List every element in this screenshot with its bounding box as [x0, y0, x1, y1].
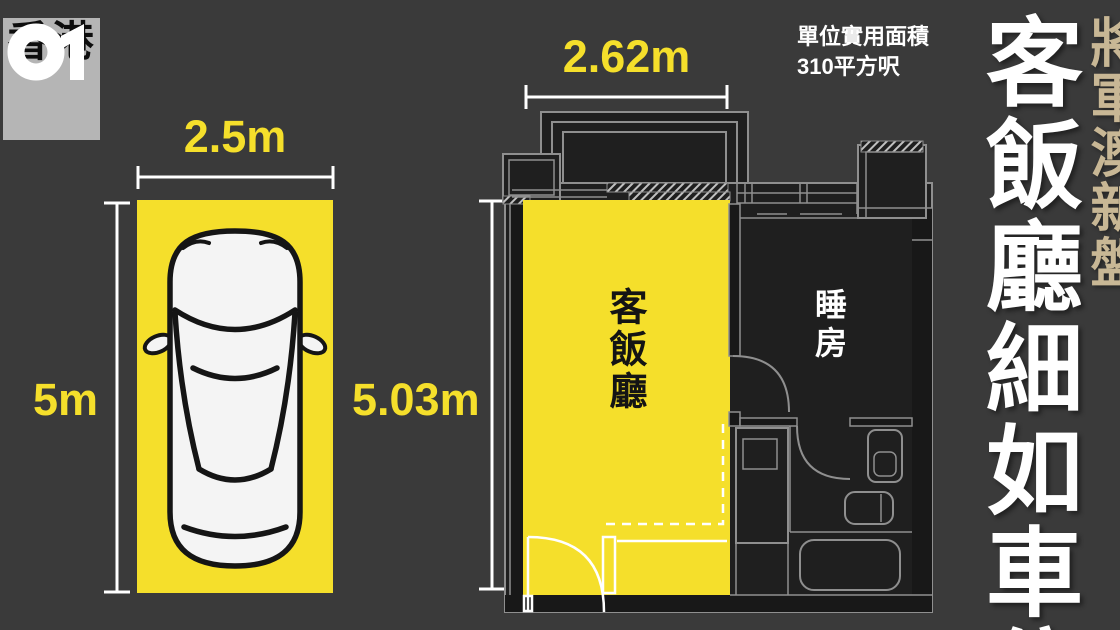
hk01-logo: 香港 — [3, 18, 100, 140]
parking-space — [104, 166, 333, 593]
wardrobe — [736, 428, 788, 543]
hatched-wall-a — [607, 183, 728, 192]
car-body — [170, 231, 300, 566]
parking-width-dimension — [138, 166, 333, 189]
bedroom-bathroom-wall-left — [740, 418, 797, 426]
subtitle-vertical: 將軍澳新盤 — [1086, 15, 1120, 290]
car-top-view-illustration — [142, 231, 328, 566]
logo-zero-glyph — [16, 32, 56, 72]
diagram-layer — [0, 0, 1120, 630]
unit-length-label: 5.03m — [352, 377, 478, 422]
parking-length-dimension — [104, 203, 130, 592]
living-bedroom-wall-upper — [729, 204, 740, 356]
top-right-box — [858, 145, 926, 218]
infographic-canvas: 香港 2.5m 5m 2.62m 5.03m 單位實用面積 310平方呎 客飯廳… — [0, 0, 1120, 630]
floor-plan — [503, 112, 932, 612]
wall-right-band — [912, 208, 932, 605]
wall-left-band — [510, 183, 523, 595]
hatched-wall-b — [629, 192, 730, 201]
area-note: 單位實用面積 310平方呎 — [797, 22, 929, 81]
hatched-wall-top-right — [861, 141, 923, 152]
headline-vertical: 客飯廳細如車位 — [977, 12, 1074, 630]
logo-number-01 — [3, 18, 100, 90]
bedroom-label: 睡房 — [813, 288, 845, 364]
area-note-line2: 310平方呎 — [797, 52, 929, 82]
bedroom-bathroom-wall-right — [850, 418, 912, 426]
parking-length-label: 5m — [20, 377, 98, 422]
unit-length-dimension — [479, 201, 505, 589]
living-bedroom-wall-stub — [729, 412, 740, 426]
unit-width-label: 2.62m — [525, 34, 728, 79]
unit-width-dimension — [526, 85, 727, 109]
parking-width-label: 2.5m — [137, 114, 333, 159]
area-note-line1: 單位實用面積 — [797, 22, 929, 52]
living-room-label: 客飯廳 — [605, 287, 643, 413]
left-service-box — [503, 154, 560, 201]
wall-bottom-band — [505, 595, 932, 612]
